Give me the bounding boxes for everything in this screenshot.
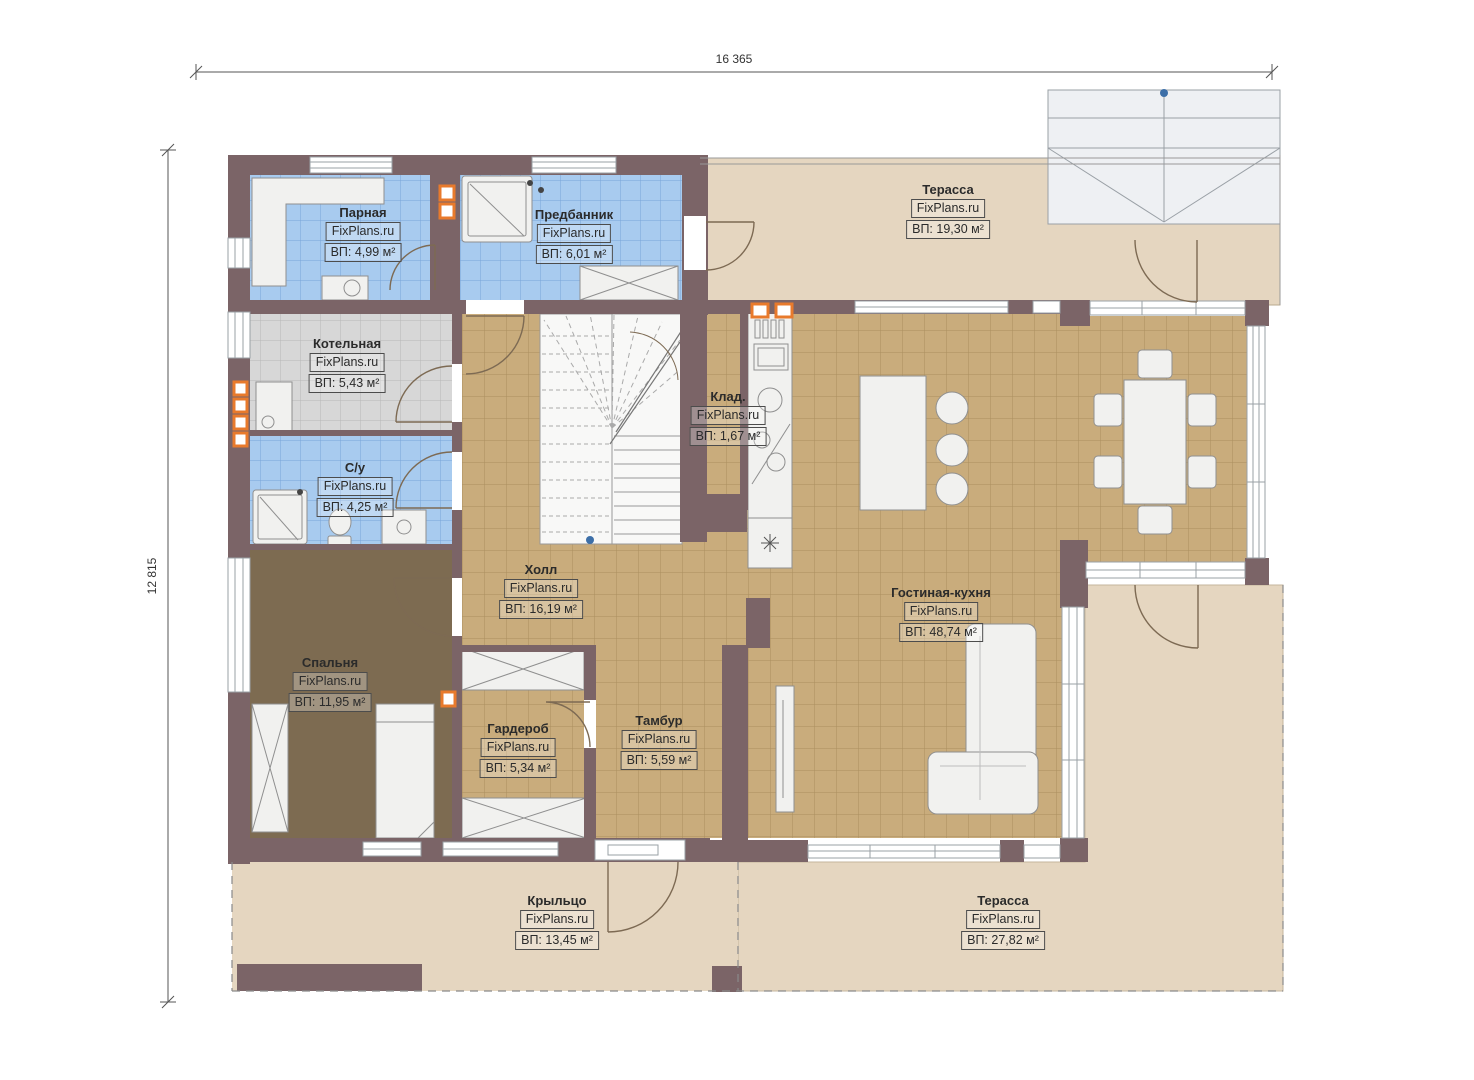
room-name: Крыльцо — [515, 894, 599, 908]
room-name: Гостиная-кухня — [891, 586, 991, 600]
room-area: ВП: 48,74 м² — [899, 623, 983, 642]
window-nook-bottom — [1086, 562, 1245, 578]
closet-bedroom — [252, 704, 288, 832]
dimension-height-label: 12 815 — [145, 558, 159, 595]
room-name: Тамбур — [621, 714, 698, 728]
window-left-parnaya — [228, 238, 250, 268]
vent-icon — [776, 304, 792, 317]
watermark-text: FixPlans.ru — [318, 477, 393, 496]
vent-icon — [440, 204, 454, 218]
window-top-predbannik — [532, 157, 616, 173]
watermark-text: FixPlans.ru — [310, 353, 385, 372]
room-label-kotelnaya: Котельная FixPlans.ru ВП: 5,43 м² — [309, 337, 386, 393]
vent-icon — [234, 416, 247, 429]
room-name: Гардероб — [480, 722, 557, 736]
room-area: ВП: 13,45 м² — [515, 931, 599, 950]
vent-icon — [234, 399, 247, 412]
shower-tray-su — [253, 489, 307, 544]
room-name: С/у — [317, 461, 394, 475]
door-gap-predbannik-terrace — [684, 216, 706, 270]
room-area: ВП: 11,95 м² — [289, 693, 372, 712]
room-area: ВП: 4,99 м² — [325, 243, 402, 262]
dining-table — [1124, 380, 1186, 504]
room-area: ВП: 4,25 м² — [317, 498, 394, 517]
door-gap-su — [452, 452, 462, 510]
vent-icon — [234, 382, 247, 395]
room-label-predbannik: Предбанник FixPlans.ru ВП: 6,01 м² — [535, 208, 613, 264]
vent-icon — [440, 186, 454, 200]
window-nook-right — [1247, 326, 1265, 558]
room-label-terrace-top: Терасса FixPlans.ru ВП: 19,30 м² — [906, 183, 990, 239]
watermark-text: FixPlans.ru — [911, 199, 986, 218]
bed — [376, 704, 434, 838]
floor-plan-drawing — [0, 0, 1474, 1080]
window-top-parnaya — [310, 157, 392, 173]
watermark-text: FixPlans.ru — [537, 224, 612, 243]
room-label-su: С/у FixPlans.ru ВП: 4,25 м² — [317, 461, 394, 517]
room-name: Котельная — [309, 337, 386, 351]
room-name: Предбанник — [535, 208, 613, 222]
door-gap-predbannik-hall — [466, 300, 524, 314]
vent-icon — [234, 433, 247, 446]
room-area: ВП: 1,67 м² — [690, 427, 767, 446]
room-label-spalnya: Спальня FixPlans.ru ВП: 11,95 м² — [289, 656, 372, 712]
window-left-spalnya — [228, 558, 250, 692]
room-area: ВП: 5,59 м² — [621, 751, 698, 770]
stairs-marker-dot — [586, 536, 594, 544]
door-gap-spalnya — [452, 578, 462, 636]
watermark-text: FixPlans.ru — [293, 672, 368, 691]
watermark-text: FixPlans.ru — [622, 730, 697, 749]
vent-icon — [442, 692, 455, 706]
sauna-stove — [322, 276, 368, 300]
watermark-text: FixPlans.ru — [691, 406, 766, 425]
room-area: ВП: 16,19 м² — [499, 600, 583, 619]
shower-tray-predbannik — [462, 176, 544, 242]
tv-stand — [776, 686, 794, 812]
vent-icon — [752, 304, 768, 317]
kitchen-island — [860, 376, 926, 510]
closet-predbannik — [580, 266, 678, 300]
room-label-gostinaya: Гостиная-кухня FixPlans.ru ВП: 48,74 м² — [891, 586, 991, 642]
floor-plan-page: 16 365 12 815 Парная FixPlans.ru ВП: 4,9… — [0, 0, 1474, 1080]
room-name: Парная — [325, 206, 402, 220]
room-name: Терасса — [906, 183, 990, 197]
window-left-kotelnaya — [228, 312, 250, 358]
closet-wardrobe-bottom — [462, 798, 586, 838]
room-name: Терасса — [961, 894, 1045, 908]
window-wall-living-right — [1062, 607, 1084, 838]
room-area: ВП: 19,30 м² — [906, 220, 990, 239]
watermark-text: FixPlans.ru — [326, 222, 401, 241]
room-label-garderob: Гардероб FixPlans.ru ВП: 5,34 м² — [480, 722, 557, 778]
window-bottom-garderob — [443, 842, 558, 856]
bar-stools — [936, 392, 968, 505]
boiler-unit — [256, 382, 292, 434]
room-label-parnaya: Парная FixPlans.ru ВП: 4,99 м² — [325, 206, 402, 262]
room-area: ВП: 5,43 м² — [309, 374, 386, 393]
window-bottom-spalnya — [363, 842, 421, 856]
room-label-terrace-bottom: Терасса FixPlans.ru ВП: 27,82 м² — [961, 894, 1045, 950]
watermark-text: FixPlans.ru — [481, 738, 556, 757]
room-name: Клад. — [690, 390, 767, 404]
door-gap-kotelnaya — [452, 364, 462, 422]
watermark-text: FixPlans.ru — [966, 910, 1041, 929]
closet-wardrobe-top — [462, 648, 584, 690]
stairs — [540, 314, 682, 544]
window-nook-top — [1090, 301, 1245, 315]
porch-pillar-long — [237, 964, 422, 991]
watermark-text: FixPlans.ru — [904, 602, 979, 621]
watermark-text: FixPlans.ru — [504, 579, 579, 598]
roof-overhang — [1048, 89, 1280, 224]
entrance-threshold — [595, 840, 685, 860]
room-area: ВП: 6,01 м² — [536, 245, 613, 264]
room-area: ВП: 27,82 м² — [961, 931, 1045, 950]
dimension-width-label: 16 365 — [716, 52, 753, 66]
room-name: Холл — [499, 563, 583, 577]
watermark-text: FixPlans.ru — [520, 910, 595, 929]
room-label-kryltso: Крыльцо FixPlans.ru ВП: 13,45 м² — [515, 894, 599, 950]
room-label-klad: Клад. FixPlans.ru ВП: 1,67 м² — [690, 390, 767, 446]
room-name: Спальня — [289, 656, 372, 670]
room-area: ВП: 5,34 м² — [480, 759, 557, 778]
room-label-holl: Холл FixPlans.ru ВП: 16,19 м² — [499, 563, 583, 619]
room-label-tambur: Тамбур FixPlans.ru ВП: 5,59 м² — [621, 714, 698, 770]
roof-marker-dot — [1160, 89, 1168, 97]
